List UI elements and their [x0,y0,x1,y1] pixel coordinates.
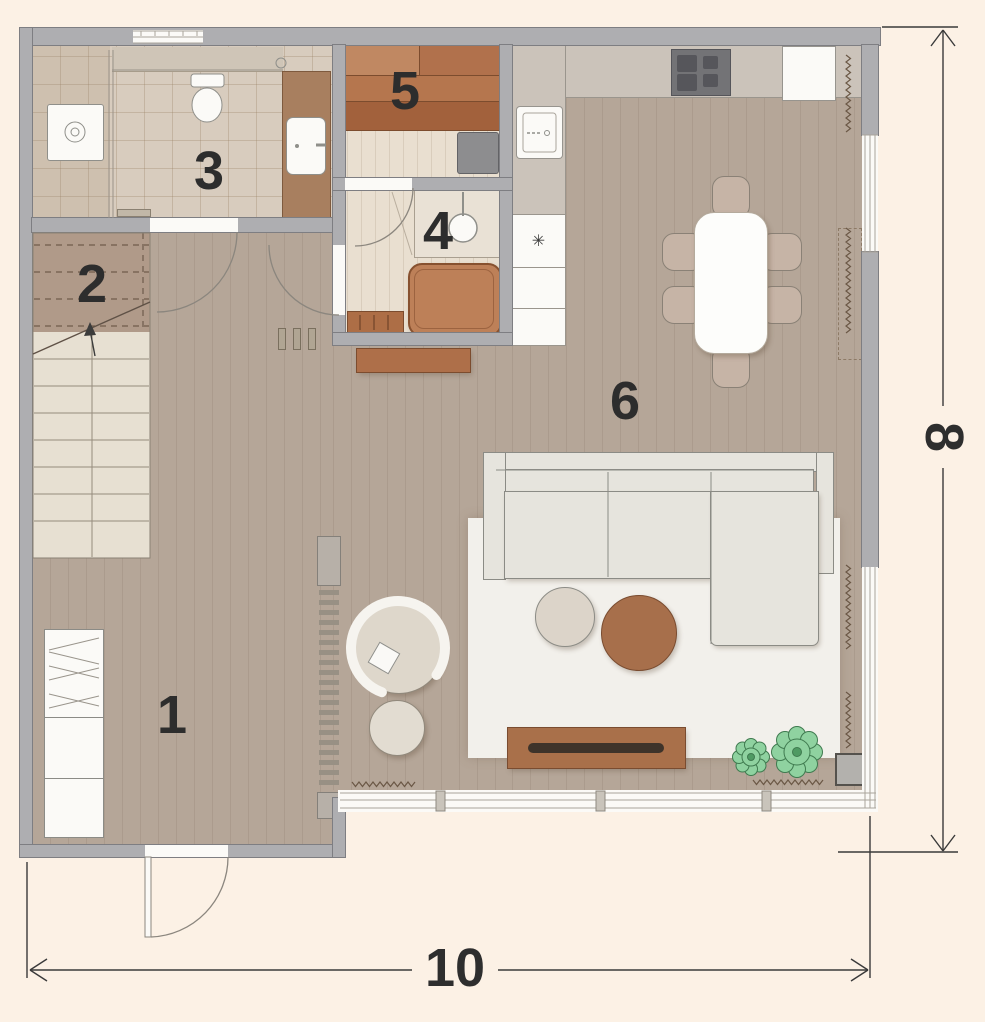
entry-door-leaf [145,857,151,937]
dimension-width-label: 10 [425,941,485,995]
wall-left [20,28,32,857]
wall-block-east [500,45,512,345]
hall-radiator-bar [294,329,300,349]
bathroom-door-opening [150,218,238,232]
washing-machine [48,105,103,160]
glass-band-bottom [338,790,878,812]
coffee-table-light [535,587,595,647]
closet-shelves [345,45,500,130]
dimension-height-label: 8 [917,422,971,452]
wardrobe-shelf-divider [45,778,103,779]
wc-door-opening [345,178,412,190]
cooktop [672,50,730,95]
cabinet-divider [512,308,565,309]
floor-plan: ✳ [0,0,985,1022]
room-label-3: 3 [194,144,224,198]
wall-right-upper [862,45,878,135]
bathroom-sink [287,118,325,174]
hall-wardrobe [45,630,103,837]
window-top [133,30,203,43]
window-right [862,135,878,252]
coffee-table-brown [601,595,677,671]
hall-radiator-bar [309,329,315,349]
partition-end-post [318,537,340,585]
console-table [357,349,470,372]
cabinet-divider [512,267,565,268]
room-label-1: 1 [157,688,187,742]
shower-squeegee [118,210,150,216]
wall-right-mid [862,252,878,567]
appliance-symbol-icon: ✳ [512,215,565,267]
wc-bench [348,312,403,333]
closet-shelf-top-right [420,45,500,75]
kitchen-sink [517,107,562,158]
room-label-2: 2 [77,257,107,311]
kitchen-cabinets: ✳ [512,215,565,345]
hall-radiator-bar [279,329,285,349]
bathroom-counter [112,47,283,71]
tv [528,743,664,753]
room-label-6: 6 [610,374,640,428]
sofa-chaise [711,492,818,645]
ottoman [369,700,425,756]
room-label-4: 4 [423,204,453,258]
hall-door-opening [333,245,345,315]
sofa-back-cushions [496,470,813,492]
closet-shelf-bottom [345,102,500,130]
sofa-left-arm [484,453,505,579]
sofa-back [484,453,833,471]
dining-table [694,212,768,354]
glass-wall-right [862,567,878,812]
fridge [783,47,835,100]
dashed-niche [838,228,862,360]
armchair [354,604,444,694]
entry-door-opening [145,845,228,857]
closet-appliance [458,133,498,173]
sofa-right-arm [817,453,833,573]
shower-tray [408,263,502,337]
slatted-partition [319,590,339,790]
sofa-seat [505,492,711,578]
shower-tray-inner [414,269,494,329]
wall-block-south [333,333,512,345]
stairs-treads [32,332,150,558]
room-label-5: 5 [390,64,420,118]
wardrobe-shelf-divider [45,717,103,718]
